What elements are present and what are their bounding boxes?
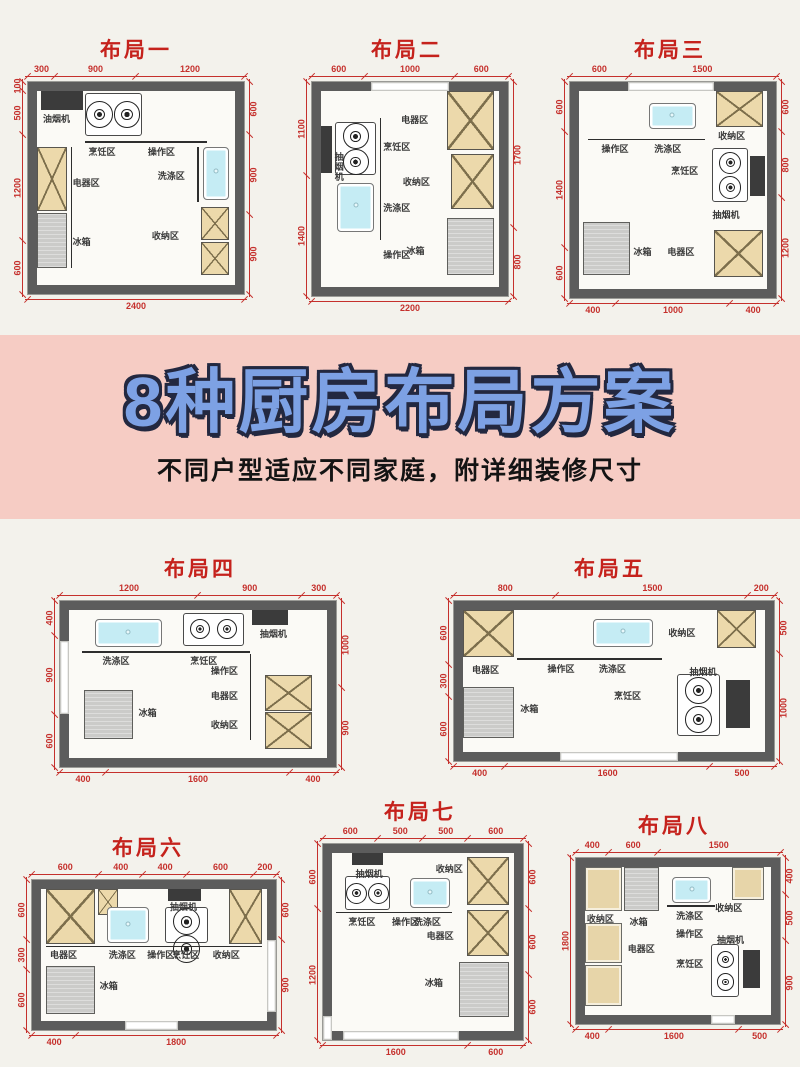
plan-interior: 电器区操作区洗涤区收纳区抽烟机烹饪区冰箱 — [463, 610, 765, 752]
right-wall — [765, 601, 774, 761]
floor-plan: 洗涤区烹饪区抽烟机操作区电器区收纳区冰箱 — [60, 601, 336, 767]
cabinet — [265, 675, 311, 711]
stove-burner — [717, 973, 734, 990]
cabinet — [714, 230, 763, 278]
layout-title: 布局三 — [540, 34, 800, 64]
burner-center — [181, 916, 192, 927]
dimension-chain-top: 3009001200 — [28, 64, 244, 80]
stove-burner — [190, 619, 210, 639]
dimension-segment: 600 — [552, 82, 568, 132]
dimension-segment: 1200 — [10, 135, 26, 241]
dimension-value: 900 — [46, 668, 55, 683]
dimension-chain-top: 600500500600 — [323, 826, 523, 842]
floor-plan: 抽烟机烹饪区操作区洗涤区收纳区电器区冰箱 — [323, 844, 523, 1040]
dimension-chain-right: 400500900 — [782, 858, 798, 1024]
plan-interior: 操作区洗涤区收纳区烹饪区抽烟机冰箱电器区 — [579, 91, 767, 289]
dimension-segment: 900 — [42, 636, 58, 715]
sink-drain — [126, 629, 131, 634]
dimension-value: 600 — [529, 869, 538, 884]
zone-label: 操作区 — [676, 929, 703, 939]
dimension-segment: 1600 — [609, 1026, 740, 1042]
dimension-segment: 600 — [525, 844, 541, 909]
dimension-chain-right: 1700800 — [510, 82, 526, 296]
dimension-chain-bottom: 2400 — [28, 296, 244, 312]
zone-label: 抽烟机 — [170, 902, 197, 912]
dimension-segment: 400 — [32, 1032, 76, 1048]
zone-label: 洗涤区 — [109, 950, 136, 960]
dimension-tick — [28, 871, 35, 878]
dimension-value: 300 — [311, 584, 326, 593]
top-wall — [28, 82, 244, 91]
dimension-value: 600 — [626, 841, 641, 850]
dimension-segment: 2400 — [28, 296, 244, 312]
burner-center — [196, 625, 204, 633]
refrigerator — [463, 687, 514, 738]
dimension-value: 400 — [75, 775, 90, 784]
stove-burner — [685, 706, 712, 733]
zone-label: 洗涤区 — [158, 171, 185, 181]
dimension-tick — [510, 78, 517, 85]
zone-label: 烹饪区 — [172, 950, 199, 960]
zone-label: 洗涤区 — [676, 911, 703, 921]
dimension-value: 300 — [440, 673, 449, 688]
cabinet — [46, 889, 96, 944]
zone-label: 冰箱 — [520, 704, 538, 714]
sink-drain — [214, 168, 219, 173]
dimension-chain-right: 5001000 — [776, 601, 792, 761]
range-hood — [168, 889, 202, 901]
dimension-tick — [778, 78, 785, 85]
dimension-segment: 600 — [42, 715, 58, 767]
zone-label: 洗涤区 — [383, 203, 410, 213]
left-wall — [570, 82, 579, 298]
dimension-segment: 100 — [10, 82, 26, 91]
banner-subtitle: 不同户型适应不同家庭，附详细装修尺寸 — [157, 451, 643, 487]
refrigerator — [37, 213, 67, 267]
dimension-segment: 1800 — [76, 1032, 276, 1048]
stove-burner — [368, 883, 389, 904]
wall-opening — [343, 1031, 459, 1040]
dimension-chain-top: 600400400600200 — [32, 862, 276, 878]
layout-section-2: 布局二抽烟机烹饪区洗涤区操作区电器区收纳区冰箱60010006002200110… — [278, 18, 536, 330]
dimension-segment: 600 — [305, 844, 321, 909]
layout-section-8: 布局八收纳区冰箱洗涤区收纳区电器区操作区烹饪区抽烟机40060015004001… — [548, 798, 800, 1062]
zone-label: 冰箱 — [139, 708, 157, 718]
dimension-tick — [525, 840, 532, 847]
dimension-value: 1100 — [298, 119, 307, 139]
dimension-segment: 600 — [323, 826, 378, 842]
sink-drain — [621, 629, 626, 634]
cabinet — [451, 154, 494, 209]
sink-drain — [689, 886, 694, 891]
top-wall — [454, 601, 774, 610]
layout-section-4: 布局四洗涤区烹饪区抽烟机操作区电器区收纳区冰箱12009003004001600… — [30, 545, 370, 795]
layout-title: 布局八 — [548, 810, 800, 840]
dimension-chain-bottom: 1600600 — [323, 1042, 523, 1058]
cabinet — [467, 857, 509, 905]
dimension-value: 1000 — [780, 698, 789, 718]
dimension-segment: 1600 — [106, 769, 290, 785]
dimension-value: 900 — [342, 720, 351, 735]
zone-label: 操作区 — [211, 666, 238, 676]
dimension-value: 600 — [18, 992, 27, 1007]
layout-title: 布局二 — [278, 34, 536, 64]
zone-label: 收纳区 — [668, 628, 695, 638]
infographic-page: 布局一油烟机烹饪区操作区洗涤区电器区冰箱收纳区30090012002400100… — [0, 0, 800, 1067]
dimension-segment: 600 — [187, 862, 254, 878]
zone-label: 操作区 — [148, 147, 175, 157]
dimension-tick — [566, 73, 573, 80]
dimension-segment: 1700 — [510, 82, 526, 228]
counter-line — [336, 912, 452, 914]
stove-burner — [217, 619, 237, 639]
dimension-value: 600 — [592, 65, 607, 74]
dimension-value: 900 — [250, 167, 259, 182]
dimension-value: 1800 — [562, 931, 571, 951]
dimension-segment: 500 — [710, 763, 774, 779]
dimension-value: 400 — [305, 775, 320, 784]
dimension-segment: 1000 — [338, 601, 354, 688]
zone-label: 收纳区 — [403, 177, 430, 187]
dimension-value: 400 — [46, 611, 55, 626]
dimension-value: 400 — [585, 306, 600, 315]
dimension-segment: 600 — [552, 248, 568, 298]
stove-burner — [343, 123, 369, 149]
dimension-value: 600 — [556, 266, 565, 281]
dimension-segment: 500 — [776, 601, 792, 654]
zone-label: 冰箱 — [634, 247, 652, 257]
wall-opening — [371, 82, 449, 91]
dimension-value: 600 — [556, 99, 565, 114]
dimension-value: 500 — [438, 827, 453, 836]
counter-line — [85, 141, 208, 143]
layout-title: 布局一 — [0, 34, 272, 64]
floor-plan: 抽烟机烹饪区洗涤区操作区电器区收纳区冰箱 — [312, 82, 508, 296]
dimension-value: 600 — [250, 101, 259, 116]
dimension-segment: 400 — [576, 1026, 609, 1042]
dimension-segment: 900 — [246, 215, 262, 295]
refrigerator — [447, 218, 493, 275]
sink — [649, 103, 696, 129]
stove-burner — [719, 152, 741, 174]
dimension-value: 1200 — [180, 65, 200, 74]
cabinet — [201, 242, 229, 275]
zone-label: 冰箱 — [100, 981, 118, 991]
dimension-value: 400 — [746, 306, 761, 315]
dimension-value: 400 — [158, 863, 173, 872]
dimension-value: 1200 — [14, 178, 23, 198]
sink — [337, 183, 374, 232]
dimension-tick — [246, 78, 253, 85]
dimension-segment: 800 — [454, 583, 556, 599]
left-wall — [323, 844, 332, 1040]
dimension-value: 1700 — [514, 145, 523, 165]
banner-title: 8种厨房布局方案 — [124, 367, 677, 437]
plan-interior: 洗涤区烹饪区抽烟机操作区电器区收纳区冰箱 — [69, 610, 327, 758]
burner-center — [94, 109, 105, 120]
left-wall — [28, 82, 37, 294]
dimension-chain-bottom: 4001000400 — [570, 300, 776, 316]
zone-label: 电器区 — [667, 247, 694, 257]
dimension-segment: 300 — [302, 583, 337, 599]
plan-interior: 电器区洗涤区操作区烹饪区收纳区冰箱抽烟机 — [41, 889, 267, 1021]
counter-line — [71, 147, 73, 267]
dimension-segment: 300 — [14, 940, 30, 970]
burner-center — [121, 109, 132, 120]
range-hood — [41, 91, 83, 110]
dimension-value: 1000 — [663, 306, 683, 315]
counter-line — [250, 654, 252, 740]
dimension-value: 1400 — [556, 180, 565, 200]
dimension-tick — [776, 597, 783, 604]
dimension-value: 600 — [309, 869, 318, 884]
dimension-segment: 600 — [468, 826, 523, 842]
dimension-segment: 900 — [278, 940, 294, 1030]
dimension-value: 400 — [786, 869, 795, 884]
zone-label: 洗涤区 — [103, 656, 130, 666]
zone-label: 收纳区 — [213, 950, 240, 960]
zone-label: 油烟机 — [43, 114, 70, 124]
dimension-chain-left: 1800 — [558, 858, 574, 1024]
left-wall — [454, 601, 463, 761]
dimension-chain-bottom: 4001600400 — [60, 769, 336, 785]
dimension-segment: 600 — [14, 880, 30, 940]
dimension-segment: 400 — [99, 862, 143, 878]
dimension-segment: 900 — [198, 583, 302, 599]
dimension-chain-right: 600900 — [278, 880, 294, 1030]
dimension-value: 500 — [780, 620, 789, 635]
dimension-value: 900 — [786, 975, 795, 990]
plan-interior: 油烟机烹饪区操作区洗涤区电器区冰箱收纳区 — [37, 91, 235, 285]
bottom-wall — [312, 287, 508, 296]
zone-label: 烹饪区 — [190, 656, 217, 666]
sink-drain — [126, 921, 131, 926]
refrigerator — [84, 690, 133, 739]
floor-plan: 操作区洗涤区收纳区烹饪区抽烟机冰箱电器区 — [570, 82, 776, 298]
dimension-chain-bottom: 4001600500 — [576, 1026, 780, 1042]
dimension-value: 600 — [474, 65, 489, 74]
zone-label: 抽烟机 — [356, 869, 383, 879]
stove-burner — [346, 883, 367, 904]
layout-section-1: 布局一油烟机烹饪区操作区洗涤区电器区冰箱收纳区30090012002400100… — [0, 18, 272, 330]
dimension-value: 600 — [343, 827, 358, 836]
cabinet — [585, 923, 622, 963]
dimension-value: 1200 — [309, 965, 318, 985]
dimension-chain-top: 8001500200 — [454, 583, 774, 599]
dimension-chain-left: 400900600 — [42, 601, 58, 767]
range-hood — [352, 853, 383, 865]
sink — [107, 907, 150, 943]
dimension-value: 1200 — [119, 584, 139, 593]
top-wall — [32, 880, 276, 889]
zone-label: 烹饪区 — [671, 166, 698, 176]
dimension-value: 200 — [754, 584, 769, 593]
cabinet — [716, 91, 763, 127]
dimension-segment: 400 — [782, 858, 798, 895]
wall-opening — [628, 82, 715, 91]
dimension-chain-right: 1000900 — [338, 601, 354, 767]
banner: 8种厨房布局方案 不同户型适应不同家庭，附详细装修尺寸 — [0, 335, 800, 519]
dimension-tick — [450, 592, 457, 599]
dimension-value: 2400 — [126, 302, 146, 311]
bottom-wall — [576, 1015, 780, 1024]
zone-label: 电器区 — [401, 115, 428, 125]
dimension-value: 1400 — [298, 226, 307, 246]
layout-title: 布局四 — [30, 553, 370, 583]
range-hood — [743, 950, 760, 988]
bottom-wall — [570, 289, 776, 298]
counter-line — [517, 658, 662, 660]
dimension-value: 600 — [488, 1048, 503, 1057]
stove-burner — [717, 951, 734, 968]
dimension-chain-bottom: 4001600500 — [454, 763, 774, 779]
zone-label: 收纳区 — [152, 231, 179, 241]
burner-center — [693, 685, 704, 696]
zone-label: 抽烟机 — [333, 152, 343, 182]
wall-opening — [60, 641, 69, 714]
burner-center — [722, 979, 729, 986]
dimension-value: 500 — [14, 105, 23, 120]
burner-center — [374, 889, 383, 898]
stove-burner — [343, 149, 369, 175]
dimension-segment: 1200 — [60, 583, 198, 599]
dimension-chain-bottom: 2200 — [312, 298, 508, 314]
wall-opening — [323, 1016, 332, 1040]
refrigerator — [583, 222, 630, 275]
dimension-value: 1500 — [692, 65, 712, 74]
cabinet — [265, 712, 311, 749]
sink — [672, 877, 711, 902]
dimension-value: 1600 — [598, 769, 618, 778]
dimension-segment: 500 — [10, 91, 26, 135]
dimension-segment: 400 — [454, 763, 505, 779]
zone-label: 烹饪区 — [88, 147, 115, 157]
refrigerator — [459, 962, 508, 1017]
dimension-segment: 800 — [510, 228, 526, 296]
cabinet — [585, 965, 622, 1006]
dimension-segment: 500 — [782, 895, 798, 941]
dimension-value: 500 — [734, 769, 749, 778]
dimension-value: 900 — [282, 977, 291, 992]
dimension-value: 1600 — [664, 1032, 684, 1041]
dimension-value: 600 — [440, 721, 449, 736]
dimension-value: 800 — [514, 254, 523, 269]
layout-title: 布局六 — [0, 832, 296, 862]
wall-opening — [125, 1021, 179, 1030]
counter-line — [197, 147, 199, 201]
dimension-segment: 900 — [338, 688, 354, 767]
dimension-segment: 1200 — [305, 909, 321, 1040]
dimension-chain-bottom: 4001800 — [32, 1032, 276, 1048]
gas-stove — [711, 944, 739, 997]
dimension-value: 900 — [250, 247, 259, 262]
zone-label: 抽烟机 — [690, 667, 717, 677]
sink-drain — [670, 112, 675, 117]
dimension-segment: 600 — [468, 1042, 523, 1058]
dimension-segment: 600 — [14, 970, 30, 1030]
dimension-tick — [308, 73, 315, 80]
zone-label: 收纳区 — [211, 720, 238, 730]
right-wall — [514, 844, 523, 1040]
dimension-chain-top: 4006001500 — [576, 840, 780, 856]
dimension-segment: 600 — [609, 840, 658, 856]
dimension-value: 600 — [282, 902, 291, 917]
dimension-segment: 1100 — [294, 82, 310, 176]
dimension-value: 1500 — [709, 841, 729, 850]
sink — [410, 878, 450, 908]
zone-label: 收纳区 — [587, 914, 614, 924]
dimension-value: 600 — [782, 99, 791, 114]
dimension-value: 600 — [18, 902, 27, 917]
plan-interior: 抽烟机烹饪区洗涤区操作区电器区收纳区冰箱 — [321, 91, 499, 287]
gas-stove — [677, 674, 719, 736]
layout-section-6: 布局六电器区洗涤区操作区烹饪区收纳区冰箱抽烟机60040040060020040… — [0, 812, 296, 1064]
dimension-chain-left: 11001400 — [294, 82, 310, 296]
dimension-segment: 600 — [436, 697, 452, 761]
dimension-segment: 1500 — [556, 583, 748, 599]
dimension-segment: 600 — [278, 880, 294, 940]
dimension-value: 200 — [257, 863, 272, 872]
dimension-value: 400 — [47, 1038, 62, 1047]
dimension-value: 400 — [585, 841, 600, 850]
dimension-chain-top: 6001000600 — [312, 64, 508, 80]
right-wall — [235, 82, 244, 294]
range-hood — [750, 156, 765, 196]
sink — [95, 619, 162, 647]
cabinet — [37, 147, 67, 211]
dimension-segment: 1000 — [776, 654, 792, 761]
refrigerator — [46, 966, 96, 1015]
burner-center — [722, 956, 729, 963]
burner-center — [693, 714, 704, 725]
gas-stove — [85, 93, 142, 136]
cabinet — [717, 610, 756, 648]
sink — [203, 147, 229, 199]
dimension-segment: 600 — [312, 64, 365, 80]
zone-label: 电器区 — [73, 178, 100, 188]
dimension-chain-left: 6001200 — [305, 844, 321, 1040]
dimension-tick — [572, 849, 579, 856]
dimension-value: 400 — [113, 863, 128, 872]
dimension-segment: 600 — [778, 82, 794, 132]
dimension-chain-left: 1005001200600 — [10, 82, 26, 294]
floor-plan: 电器区洗涤区操作区烹饪区收纳区冰箱抽烟机 — [32, 880, 276, 1030]
zone-label: 冰箱 — [73, 237, 91, 247]
plan-interior: 收纳区冰箱洗涤区收纳区电器区操作区烹饪区抽烟机 — [585, 867, 771, 1015]
dimension-value: 1600 — [386, 1048, 406, 1057]
layout-section-7: 布局七抽烟机烹饪区操作区洗涤区收纳区电器区冰箱60050050060016006… — [295, 790, 545, 1067]
burner-center — [350, 131, 361, 142]
counter-line — [82, 651, 250, 653]
cabinet — [732, 867, 764, 900]
dimension-value: 600 — [440, 625, 449, 640]
dimension-value: 300 — [18, 947, 27, 962]
zone-label: 洗涤区 — [654, 144, 681, 154]
layout-title: 布局五 — [420, 553, 800, 583]
dimension-segment: 200 — [748, 583, 774, 599]
dimension-segment: 400 — [143, 862, 187, 878]
dimension-segment: 1400 — [552, 132, 568, 248]
zone-label: 烹饪区 — [348, 917, 375, 927]
dimension-value: 500 — [786, 910, 795, 925]
zone-label: 电器区 — [427, 931, 454, 941]
left-wall — [32, 880, 41, 1030]
wall-opening — [267, 940, 276, 1012]
dimension-segment: 1800 — [558, 858, 574, 1024]
dimension-segment: 400 — [730, 300, 776, 316]
dimension-tick — [338, 597, 345, 604]
dimension-segment: 1000 — [365, 64, 454, 80]
